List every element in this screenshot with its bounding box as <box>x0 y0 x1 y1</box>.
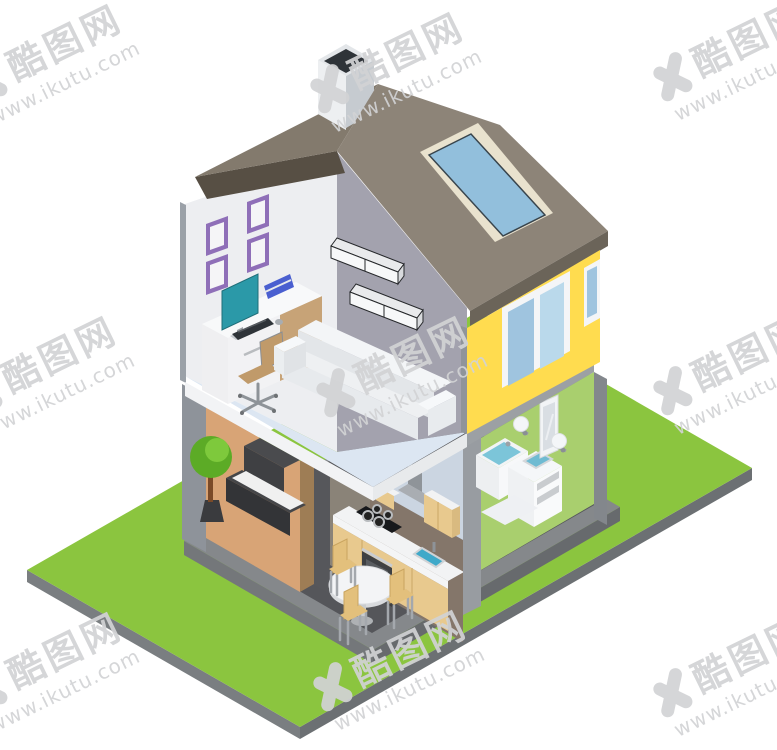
burner <box>363 511 373 521</box>
bathroom-right-column <box>594 372 607 525</box>
picture-frame-inner <box>210 260 224 289</box>
wall-cabinet-side <box>452 506 460 538</box>
house-illustration <box>0 0 777 750</box>
window-glass-right <box>540 282 564 369</box>
window-glass-left <box>508 298 534 386</box>
picture-frame-inner <box>251 238 265 267</box>
window-glass-partial <box>587 266 597 318</box>
yellow-wall-edge <box>461 326 467 434</box>
mouse <box>275 319 283 325</box>
tub-faucet <box>506 442 511 447</box>
office-wall-edge <box>180 202 186 383</box>
bedroom-side-wall <box>300 454 314 592</box>
tree-canopy-highlight <box>205 438 229 462</box>
illustration-canvas: 酷图网 www.ikutu.com 酷图网 www.ikutu.com 酷图网 … <box>0 0 777 750</box>
burner <box>373 505 381 513</box>
desk-left-face <box>202 324 228 404</box>
burner <box>384 511 392 519</box>
burner <box>374 517 384 527</box>
